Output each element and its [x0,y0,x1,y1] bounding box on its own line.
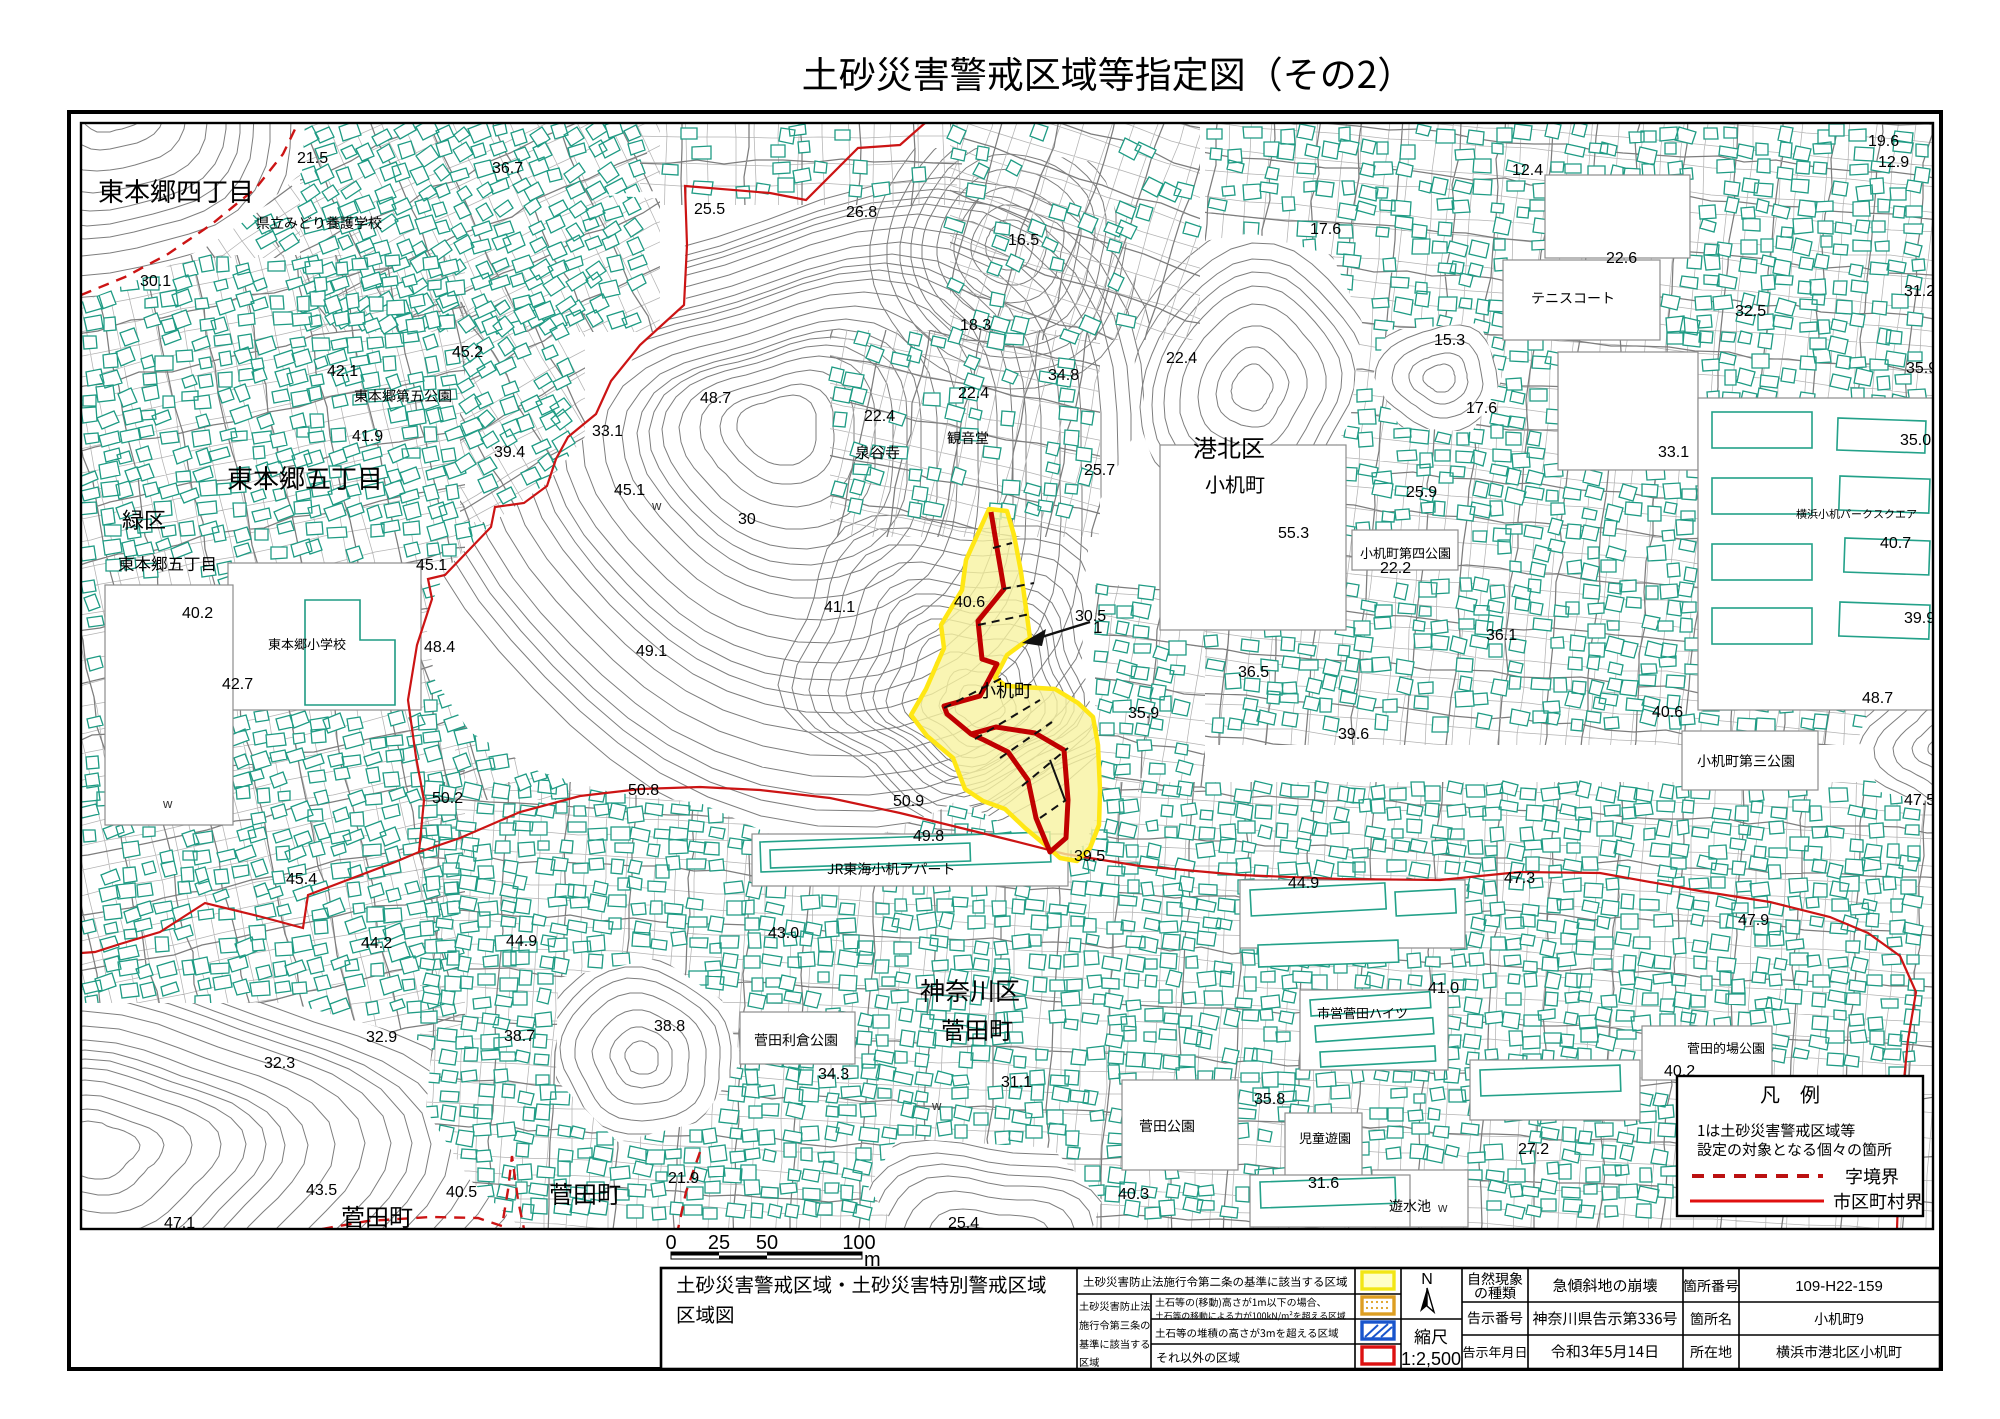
svg-text:49.1: 49.1 [636,643,667,660]
svg-text:21.5: 21.5 [297,150,328,167]
svg-text:42.1: 42.1 [327,363,358,380]
svg-text:1: 1 [1093,618,1102,637]
svg-text:15.3: 15.3 [1434,332,1465,349]
svg-text:12.9: 12.9 [1878,154,1909,171]
svg-text:w: w [651,498,662,513]
svg-text:47.9: 47.9 [1738,912,1769,929]
svg-text:35.9: 35.9 [1128,705,1159,722]
svg-text:41.9: 41.9 [352,428,383,445]
svg-text:1:2,500: 1:2,500 [1401,1349,1461,1369]
svg-text:26.8: 26.8 [846,204,877,221]
svg-text:47.5: 47.5 [1904,792,1935,809]
svg-text:N: N [1421,1271,1433,1288]
svg-text:49.8: 49.8 [913,828,944,845]
svg-text:45.2: 45.2 [452,344,483,361]
svg-text:50.9: 50.9 [893,793,924,810]
svg-text:17.6: 17.6 [1310,221,1341,238]
svg-text:40.3: 40.3 [1118,1186,1149,1203]
svg-text:22.4: 22.4 [1166,350,1197,367]
svg-text:55.3: 55.3 [1278,525,1309,542]
svg-text:22.4: 22.4 [958,385,989,402]
svg-text:39.4: 39.4 [494,444,525,461]
svg-text:40.5: 40.5 [446,1184,477,1201]
svg-text:43.5: 43.5 [306,1182,337,1199]
svg-text:22.4: 22.4 [864,408,895,425]
svg-text:47.3: 47.3 [1504,870,1535,887]
svg-text:18.3: 18.3 [960,317,991,334]
svg-text:40.6: 40.6 [954,594,985,611]
svg-text:45.4: 45.4 [286,871,317,888]
svg-text:42.7: 42.7 [222,676,253,693]
svg-text:16.5: 16.5 [1008,232,1039,249]
svg-text:50.2: 50.2 [432,790,463,807]
svg-text:48.7: 48.7 [700,390,731,407]
svg-text:w: w [931,1098,942,1113]
svg-text:30: 30 [738,511,756,528]
svg-text:48.7: 48.7 [1862,690,1893,707]
svg-text:25.9: 25.9 [1406,484,1437,501]
svg-text:40.6: 40.6 [1652,704,1683,721]
svg-text:32.9: 32.9 [366,1029,397,1046]
svg-text:36.5: 36.5 [1238,664,1269,681]
svg-text:35.0: 35.0 [1900,432,1931,449]
svg-text:33.1: 33.1 [1658,444,1689,461]
svg-text:40.7: 40.7 [1880,535,1911,552]
svg-text:36.1: 36.1 [1486,627,1517,644]
svg-text:31.6: 31.6 [1308,1175,1339,1192]
svg-text:22.2: 22.2 [1380,560,1411,577]
svg-text:33.1: 33.1 [592,423,623,440]
svg-text:35.8: 35.8 [1254,1091,1285,1108]
svg-text:50.8: 50.8 [628,782,659,799]
svg-text:w: w [162,796,173,811]
svg-text:48.4: 48.4 [424,639,455,656]
svg-text:45.1: 45.1 [614,482,645,499]
svg-text:32.5: 32.5 [1735,303,1766,320]
svg-text:w: w [1437,1200,1448,1215]
svg-text:38.7: 38.7 [504,1028,535,1045]
svg-text:36.7: 36.7 [492,160,523,177]
svg-text:32.3: 32.3 [264,1055,295,1072]
svg-text:39.6: 39.6 [1338,726,1369,743]
svg-text:43.0: 43.0 [768,925,799,942]
svg-text:30.1: 30.1 [140,273,171,290]
svg-text:25: 25 [708,1232,730,1254]
svg-text:39.5: 39.5 [1074,848,1105,865]
svg-text:40.2: 40.2 [182,605,213,622]
svg-text:31.1: 31.1 [1001,1074,1032,1091]
svg-text:12.4: 12.4 [1512,162,1543,179]
svg-text:34.8: 34.8 [1048,367,1079,384]
svg-text:34.3: 34.3 [818,1066,849,1083]
svg-text:38.8: 38.8 [654,1018,685,1035]
svg-text:109-H22-159: 109-H22-159 [1795,1278,1883,1295]
svg-text:41.0: 41.0 [1428,980,1459,997]
svg-text:39.9: 39.9 [1904,610,1935,627]
svg-text:21.9: 21.9 [668,1170,699,1187]
svg-text:41.1: 41.1 [824,599,855,616]
svg-text:25.5: 25.5 [694,201,725,218]
svg-text:0: 0 [665,1232,676,1254]
svg-text:27.2: 27.2 [1518,1141,1549,1158]
svg-text:31.2: 31.2 [1904,283,1935,300]
svg-text:19.6: 19.6 [1868,133,1899,150]
svg-text:44.2: 44.2 [361,935,392,952]
svg-text:44.9: 44.9 [506,933,537,950]
svg-text:17.6: 17.6 [1466,400,1497,417]
svg-text:25.7: 25.7 [1084,462,1115,479]
svg-text:44.9: 44.9 [1288,875,1319,892]
svg-text:50: 50 [756,1232,778,1254]
svg-text:45.1: 45.1 [416,557,447,574]
svg-text:22.6: 22.6 [1606,250,1637,267]
